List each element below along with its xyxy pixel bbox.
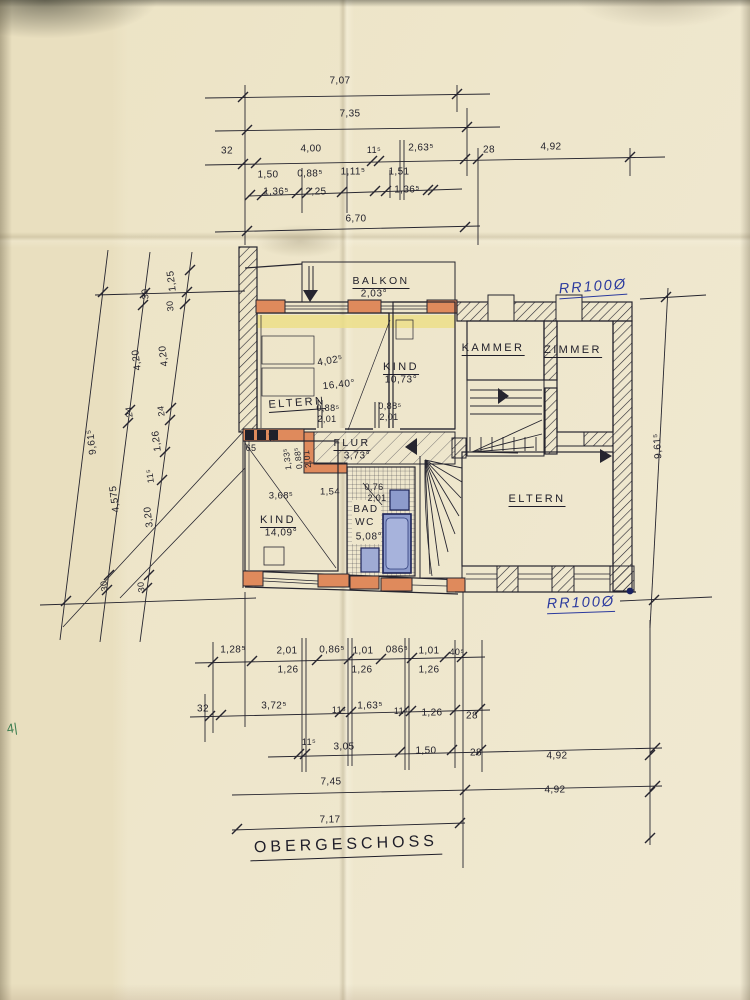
room-area-balkon: 2,03° — [361, 289, 387, 300]
room-label-eltern-bottom: ELTERN — [509, 493, 566, 507]
room-area-kind-top: 10,73° — [385, 375, 418, 386]
handwritten-note-rr100-top: RR100Ø — [558, 277, 628, 300]
room-label-wc: WC — [355, 517, 375, 529]
text-labels-layer: BALKON 2,03° ELTERN 16,40° KIND 10,73° K… — [0, 0, 750, 1000]
room-area-eltern-top: 16,40° — [322, 378, 356, 392]
room-label-eltern-top: ELTERN — [268, 395, 326, 413]
room-label-kammer: KAMMER — [462, 342, 525, 356]
scanned-floorplan-page: 7,077,35324,0011⁵2,63⁵284,921,500,88⁵1,1… — [0, 0, 750, 1000]
handwritten-green-mark: 4| — [6, 720, 19, 736]
room-label-balkon: BALKON — [353, 275, 410, 289]
room-label-zimmer: ZIMMER — [544, 344, 602, 358]
page-title: OBERGESCHOSS — [250, 833, 443, 862]
handwritten-note-rr100-bottom: RR100Ø — [546, 594, 615, 614]
room-area-bad: 5,08° — [356, 532, 382, 543]
room-area-kind-bottom: 14,09° — [265, 528, 298, 539]
room-label-kind-bottom: KIND — [260, 514, 296, 528]
room-label-bad: BAD — [353, 504, 378, 516]
room-label-kind-top: KIND — [383, 361, 419, 375]
room-area-flur: 3,73° — [344, 451, 370, 462]
room-label-flur: FLUR — [333, 437, 370, 451]
